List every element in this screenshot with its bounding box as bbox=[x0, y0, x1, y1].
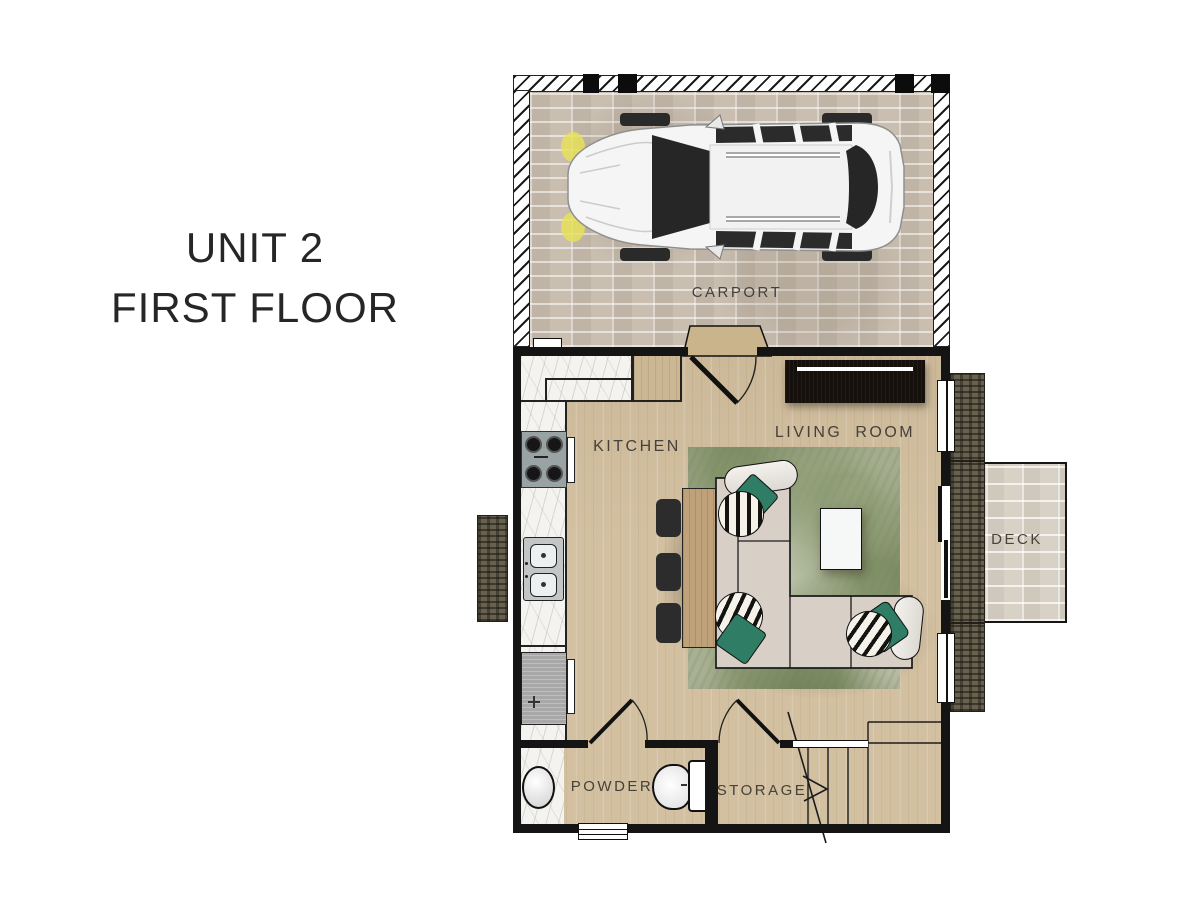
wall-top-left-segment bbox=[513, 347, 688, 356]
carport-post bbox=[583, 74, 599, 93]
kitchen-counter-wood bbox=[633, 356, 682, 402]
tv-screen-line bbox=[797, 367, 913, 371]
bar-stool bbox=[656, 603, 681, 643]
planter-divider bbox=[950, 622, 985, 624]
carport-post bbox=[895, 74, 914, 93]
bar-stool bbox=[656, 553, 681, 591]
carport-roof-edge-left bbox=[513, 90, 530, 347]
carport-post bbox=[931, 74, 950, 93]
plan-title-line1: UNIT 2 bbox=[90, 218, 420, 278]
stair-header-opening bbox=[793, 740, 868, 748]
car-top-view-icon bbox=[560, 113, 912, 261]
double-sink-icon bbox=[523, 537, 564, 601]
sliding-door-panel bbox=[944, 540, 948, 598]
plan-title-line2: FIRST FLOOR bbox=[90, 278, 420, 338]
counter-step-line bbox=[545, 378, 633, 380]
storage-label: STORAGE bbox=[662, 782, 862, 799]
planter-divider bbox=[950, 460, 985, 462]
wall-right-segment bbox=[941, 347, 950, 380]
carport-roof-edge-top bbox=[513, 75, 950, 92]
counter-step-line bbox=[521, 645, 567, 647]
window-powder bbox=[578, 823, 628, 840]
left-planter-box bbox=[477, 515, 508, 622]
carport-roof-edge-right bbox=[933, 90, 950, 347]
counter-edge-bump bbox=[567, 659, 575, 714]
wall-right-segment bbox=[941, 452, 950, 486]
kitchen-label: KITCHEN bbox=[537, 438, 737, 456]
wall-hall-segment bbox=[780, 740, 793, 748]
living-room-label: LIVING ROOM bbox=[745, 424, 945, 442]
wall-top-right-segment bbox=[757, 347, 950, 356]
wall-left bbox=[513, 347, 521, 833]
counter-step-line bbox=[545, 378, 547, 402]
wall-right-segment bbox=[941, 703, 950, 833]
wall-hall-segment bbox=[521, 740, 588, 748]
wall-right-segment bbox=[941, 600, 950, 633]
plan-title: UNIT 2 FIRST FLOOR bbox=[90, 218, 420, 337]
carport-label: CARPORT bbox=[637, 284, 837, 301]
wall-hall-segment bbox=[645, 740, 718, 748]
kitchen-island bbox=[682, 488, 716, 648]
carport-post bbox=[618, 74, 637, 93]
floor-plan-canvas: UNIT 2 FIRST FLOOR CARPORT bbox=[0, 0, 1200, 900]
washer-appliance bbox=[521, 652, 567, 725]
coffee-table bbox=[820, 508, 862, 570]
bar-stool bbox=[656, 499, 681, 537]
deck-label: DECK bbox=[917, 531, 1117, 548]
window-right-lower bbox=[937, 633, 955, 703]
